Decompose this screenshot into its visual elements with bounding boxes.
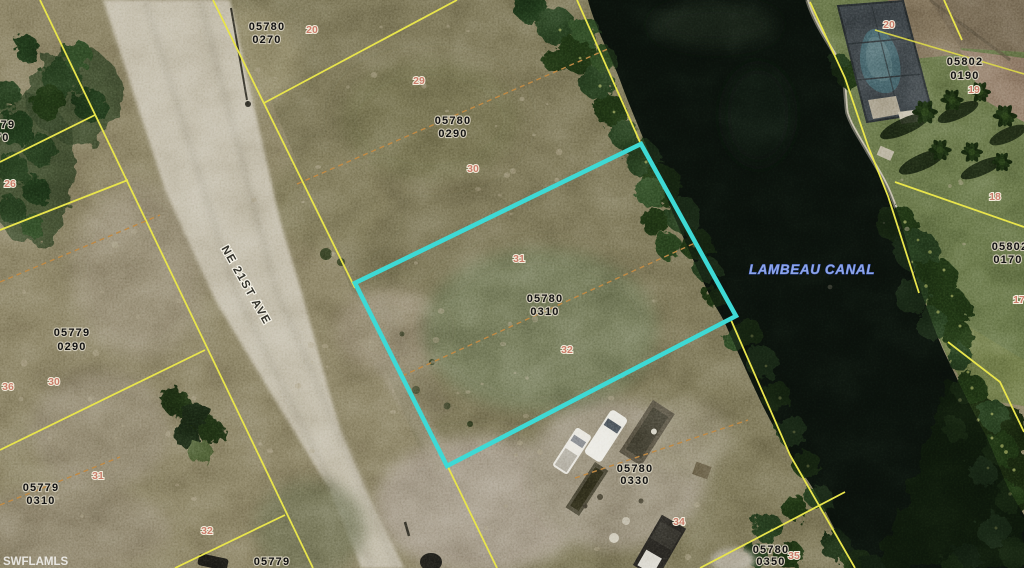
svg-text:LAMBEAU CANAL: LAMBEAU CANAL [749,262,875,277]
svg-text:0330: 0330 [620,475,649,487]
svg-text:05779: 05779 [54,327,91,339]
svg-text:0290: 0290 [438,128,467,140]
svg-text:36: 36 [2,381,14,393]
svg-text:0310: 0310 [26,495,55,507]
svg-text:05779: 05779 [23,482,60,494]
svg-text:0170: 0170 [993,254,1022,266]
svg-text:19: 19 [968,84,980,96]
svg-text:05780: 05780 [617,463,654,475]
svg-text:05780: 05780 [527,293,564,305]
svg-text:0310: 0310 [530,306,559,318]
svg-text:31: 31 [513,253,525,265]
svg-text:30: 30 [48,376,60,388]
svg-text:34: 34 [673,516,685,528]
svg-text:0190: 0190 [950,70,979,82]
svg-text:05780: 05780 [753,544,790,556]
svg-text:SWFLAMLS: SWFLAMLS [3,556,68,568]
svg-text:20: 20 [306,24,318,36]
svg-text:35: 35 [788,550,800,562]
svg-text:0270: 0270 [0,132,10,144]
svg-text:26: 26 [4,178,16,190]
svg-text:05780: 05780 [249,21,286,33]
svg-text:32: 32 [201,525,213,537]
svg-text:0290: 0290 [57,341,86,353]
svg-text:0270: 0270 [252,34,281,46]
svg-text:05802: 05802 [947,56,984,68]
svg-text:0350: 0350 [756,556,785,568]
svg-text:18: 18 [989,191,1001,203]
svg-text:17: 17 [1013,294,1024,306]
svg-text:05802: 05802 [992,241,1024,253]
svg-text:31: 31 [92,470,104,482]
svg-text:20: 20 [883,19,895,31]
svg-text:05779: 05779 [0,119,15,131]
svg-text:30: 30 [467,163,479,175]
svg-text:05779: 05779 [254,556,291,568]
svg-text:32: 32 [561,344,573,356]
svg-text:05780: 05780 [435,115,472,127]
svg-text:29: 29 [413,75,425,87]
